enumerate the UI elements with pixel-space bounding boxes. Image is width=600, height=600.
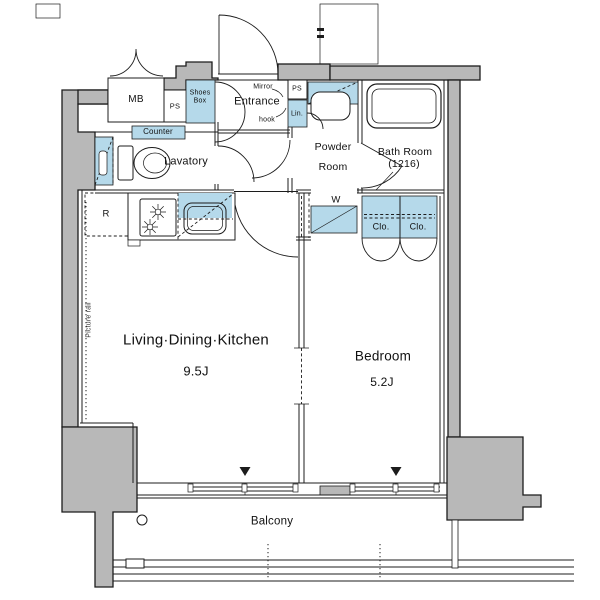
bedroom-label: Bedroom: [355, 349, 411, 363]
mirror-label: Mirror: [253, 84, 272, 91]
floor-plan: MB PS Shoes Box Entrance Mirror hook PS …: [0, 0, 600, 600]
adjacent-outlines: [36, 4, 378, 64]
walls: [62, 62, 541, 587]
window-marker-icon: [391, 467, 402, 476]
powder-room-label: Room: [319, 162, 348, 173]
washing-machine-label: W: [331, 195, 340, 205]
bath-room-fixtures: [361, 84, 441, 190]
counter-label: Counter: [143, 128, 173, 136]
hook-label: hook: [259, 117, 275, 124]
bathtub-icon: [367, 84, 441, 128]
ldk-label: Living·Dining·Kitchen: [123, 333, 269, 348]
entrance-label: Entrance: [234, 97, 280, 108]
closet-right-label: Clo.: [410, 223, 427, 232]
ldk-size-label: 9.5J: [183, 365, 208, 378]
windows: [137, 467, 458, 568]
toilet-icon: [118, 146, 170, 180]
shoes-box-label: Box: [194, 98, 207, 105]
shoes-box-label: Shoes: [190, 90, 211, 97]
closet-left-label: Clo.: [373, 223, 390, 232]
powder-room-label: Powder: [315, 142, 352, 153]
meter-box: [108, 49, 164, 122]
balcony-label: Balcony: [251, 516, 293, 528]
linen-label: Lin.: [291, 111, 303, 118]
lavatory-label: Lavatory: [164, 157, 208, 168]
meter-box-label: MB: [128, 95, 143, 105]
bath-room-label: Bath Room: [378, 147, 432, 158]
balcony: [110, 515, 574, 581]
pipe-space-right-label: PS: [292, 86, 302, 93]
refrigerator-label: R: [102, 209, 109, 219]
kitchen-fixtures: [85, 193, 235, 246]
washbasin-icon: [311, 92, 350, 120]
bath-room-size-label: (1216): [388, 159, 420, 170]
picture-rail-label: Picture rail: [86, 302, 93, 337]
bedroom-size-label: 5.2J: [370, 376, 393, 388]
entrance-door: [218, 15, 278, 80]
window-marker-icon: [240, 467, 251, 476]
pipe-space-left-label: PS: [170, 102, 180, 110]
